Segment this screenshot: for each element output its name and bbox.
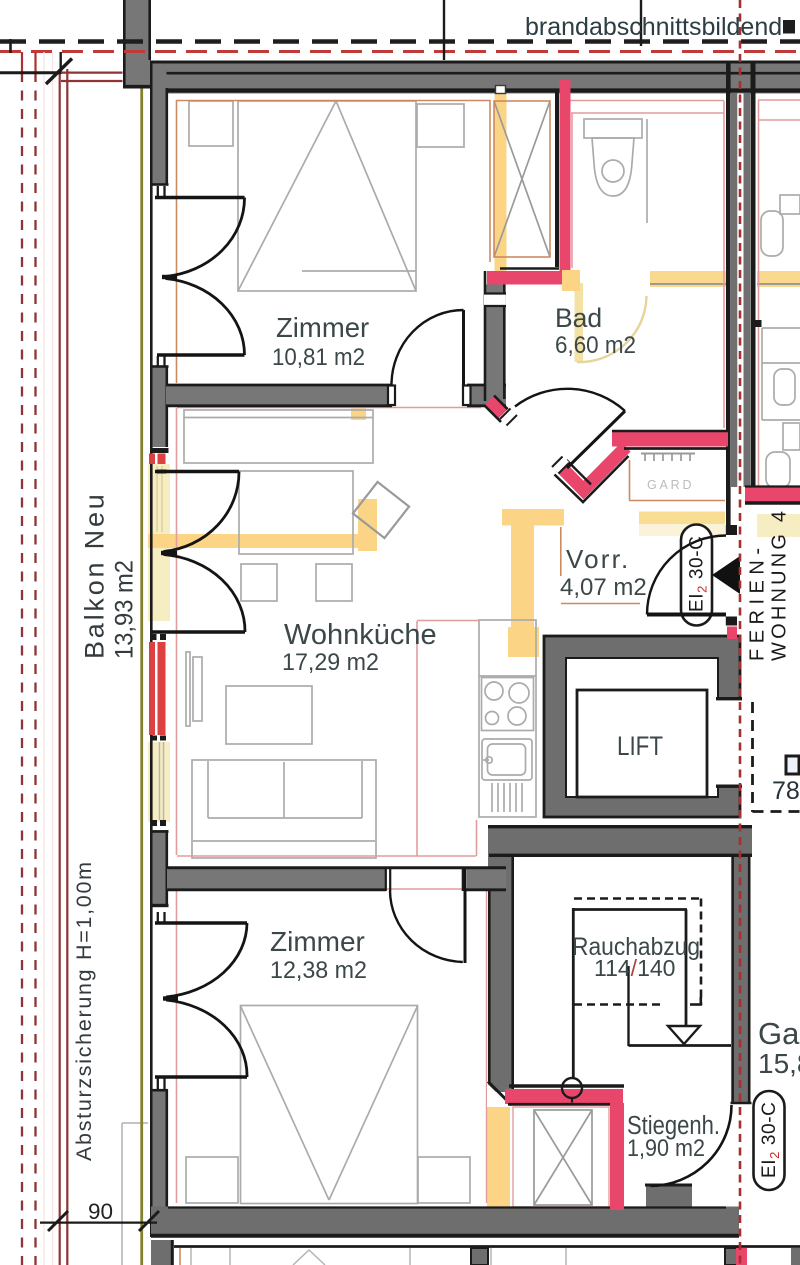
svg-text:EI2 30-C: EI2 30-C	[687, 536, 710, 612]
svg-text:brandabschnittsbildend: brandabschnittsbildend	[525, 13, 782, 41]
svg-text:FERIEN-: FERIEN-	[747, 543, 769, 662]
svg-text:1,90 m2: 1,90 m2	[627, 1135, 705, 1162]
svg-text:78: 78	[772, 777, 800, 805]
svg-text:Bad: Bad	[555, 303, 602, 333]
svg-text:Balkon Neu: Balkon Neu	[80, 491, 110, 659]
svg-text:Absturzsicherung H=1,00m: Absturzsicherung H=1,00m	[72, 860, 96, 1161]
svg-text:15,82: 15,82	[758, 1048, 800, 1079]
svg-text:EI2 30-C: EI2 30-C	[759, 1102, 782, 1178]
svg-text:6,60 m2: 6,60 m2	[555, 332, 636, 359]
svg-text:17,29 m2: 17,29 m2	[282, 649, 379, 676]
svg-text:Wohnküche: Wohnküche	[284, 619, 437, 651]
svg-text:12,38 m2: 12,38 m2	[270, 957, 367, 984]
svg-text:114/140: 114/140	[594, 955, 675, 981]
svg-text:4,07 m2: 4,07 m2	[560, 574, 647, 601]
svg-text:GARD: GARD	[647, 478, 694, 492]
svg-text:Zimmer: Zimmer	[276, 312, 369, 343]
svg-text:90: 90	[88, 1199, 113, 1224]
svg-text:Gard: Gard	[758, 1016, 800, 1051]
svg-text:Zimmer: Zimmer	[270, 926, 365, 957]
svg-text:Vorr.: Vorr.	[566, 544, 630, 574]
svg-text:LIFT: LIFT	[617, 731, 663, 761]
svg-text:WOHNUNG 4: WOHNUNG 4	[769, 508, 791, 661]
svg-text:13,93 m2: 13,93 m2	[111, 560, 139, 659]
svg-text:10,81 m2: 10,81 m2	[272, 344, 365, 371]
